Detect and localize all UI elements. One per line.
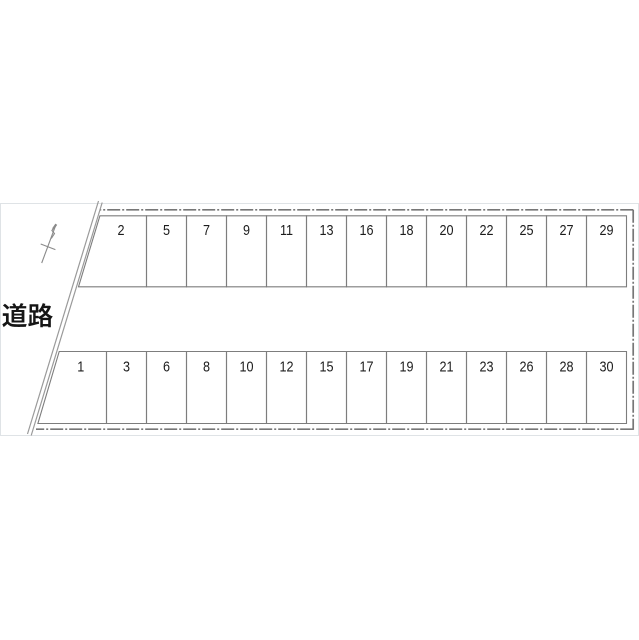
- svg-text:7: 7: [203, 222, 210, 238]
- svg-text:9: 9: [243, 222, 250, 238]
- svg-text:6: 6: [163, 358, 170, 374]
- svg-text:30: 30: [599, 358, 613, 374]
- svg-text:10: 10: [239, 358, 253, 374]
- svg-text:12: 12: [279, 358, 293, 374]
- svg-text:29: 29: [599, 222, 613, 238]
- svg-text:13: 13: [319, 222, 333, 238]
- svg-text:22: 22: [479, 222, 493, 238]
- svg-text:17: 17: [359, 358, 373, 374]
- svg-text:1: 1: [77, 358, 84, 374]
- svg-text:20: 20: [439, 222, 453, 238]
- svg-text:25: 25: [519, 222, 533, 238]
- svg-text:3: 3: [123, 358, 130, 374]
- svg-text:5: 5: [163, 222, 170, 238]
- svg-text:27: 27: [559, 222, 573, 238]
- svg-text:23: 23: [479, 358, 493, 374]
- svg-text:21: 21: [439, 358, 453, 374]
- svg-text:28: 28: [559, 358, 573, 374]
- svg-text:16: 16: [359, 222, 373, 238]
- svg-text:8: 8: [203, 358, 210, 374]
- svg-text:11: 11: [280, 222, 293, 238]
- svg-text:26: 26: [519, 358, 533, 374]
- svg-text:2: 2: [117, 222, 124, 238]
- svg-text:15: 15: [319, 358, 333, 374]
- svg-text:19: 19: [399, 358, 413, 374]
- svg-text:18: 18: [399, 222, 413, 238]
